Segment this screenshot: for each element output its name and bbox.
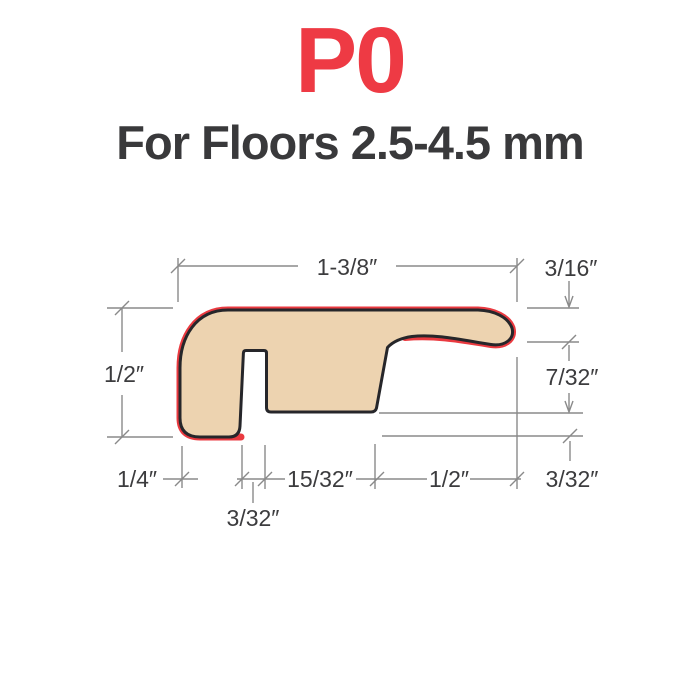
dim-top-width: 1-3/8″: [171, 254, 524, 302]
dim-label-base-mid: 15/32″: [287, 466, 353, 492]
dim-bottom-step: 3/32″: [546, 441, 599, 492]
dim-label-top-width: 1-3/8″: [317, 254, 378, 280]
dim-label-nose-overhang: 1/2″: [429, 466, 469, 492]
dim-label-left-height: 1/2″: [104, 361, 144, 387]
dim-label-nose-thickness: 3/16″: [545, 255, 598, 281]
dim-label-base-left: 1/4″: [117, 466, 157, 492]
dim-label-bottom-step: 3/32″: [546, 466, 599, 492]
reference-line: [379, 413, 583, 436]
dim-label-underside-gap: 7/32″: [546, 364, 599, 390]
dim-slot-width: 3/32″: [227, 482, 280, 531]
reference-line: [527, 308, 579, 342]
profile-shape: [180, 310, 513, 437]
dim-underside-gap: 7/32″: [379, 345, 598, 443]
page: P0 For Floors 2.5-4.5 mm 1-3/8″ 3/16″ 1/…: [0, 0, 700, 700]
dim-left-height: 1/2″: [104, 301, 173, 444]
dim-nose-thickness: 3/16″: [527, 255, 597, 349]
profile-diagram: 1-3/8″ 3/16″ 1/2″ 7/32″ 3/32: [0, 0, 700, 700]
dim-label-slot-width: 3/32″: [227, 505, 280, 531]
